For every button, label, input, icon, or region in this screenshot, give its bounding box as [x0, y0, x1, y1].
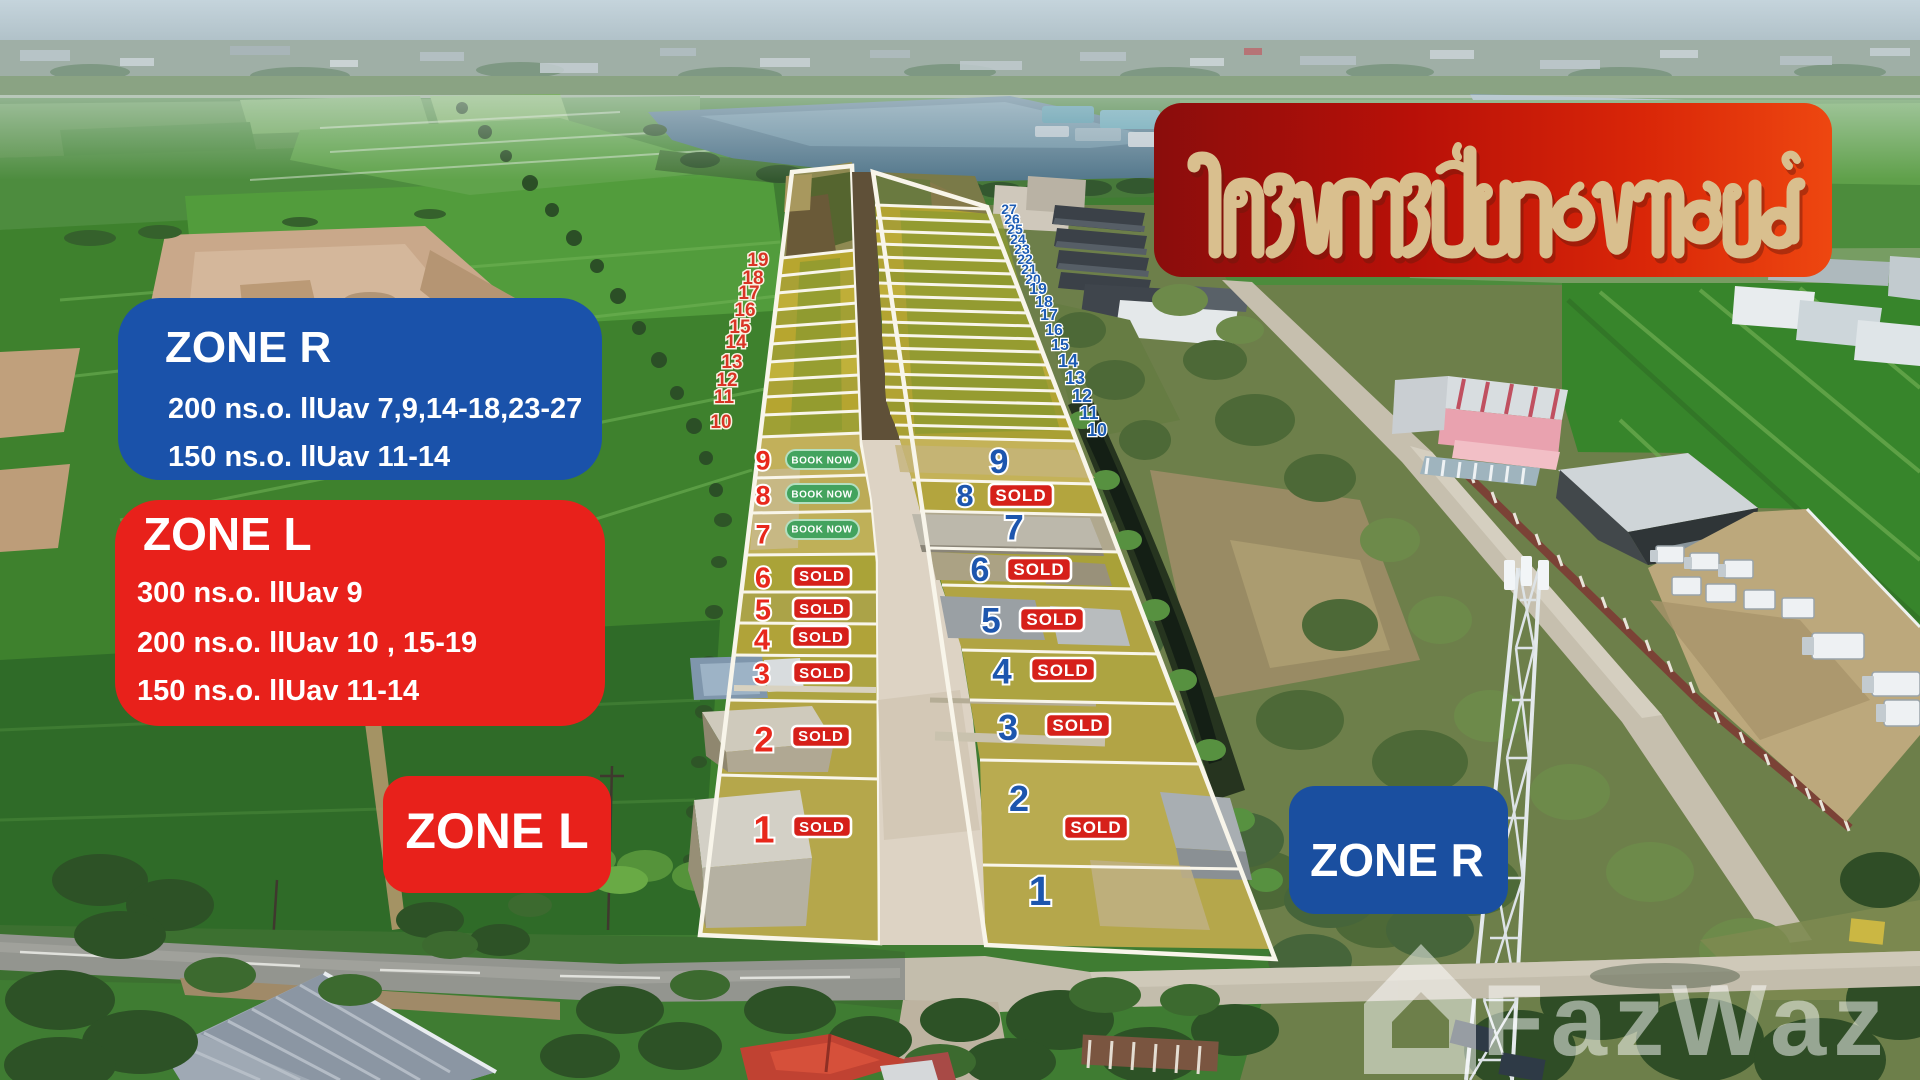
- svg-text:7: 7: [755, 520, 770, 550]
- svg-text:3: 3: [998, 707, 1018, 748]
- svg-text:SOLD: SOLD: [995, 486, 1046, 505]
- svg-text:SOLD: SOLD: [1013, 560, 1064, 579]
- svg-text:3: 3: [754, 658, 770, 690]
- svg-text:4: 4: [754, 624, 770, 656]
- svg-text:SOLD: SOLD: [1037, 661, 1088, 680]
- svg-text:SOLD: SOLD: [799, 601, 845, 618]
- svg-text:14: 14: [725, 332, 747, 353]
- svg-text:1: 1: [1029, 868, 1052, 914]
- svg-text:7: 7: [1004, 509, 1023, 548]
- svg-text:5: 5: [755, 594, 771, 626]
- svg-text:SOLD: SOLD: [798, 728, 844, 745]
- svg-text:SOLD: SOLD: [1026, 610, 1077, 629]
- svg-text:9: 9: [755, 446, 770, 476]
- svg-text:8: 8: [755, 481, 770, 511]
- svg-text:8: 8: [956, 478, 973, 513]
- svg-text:300 ns.o. llUav 9: 300 ns.o. llUav 9: [137, 577, 363, 609]
- svg-text:BOOK NOW: BOOK NOW: [791, 490, 852, 501]
- svg-text:13: 13: [1065, 368, 1085, 388]
- svg-text:SOLD: SOLD: [1052, 716, 1103, 735]
- svg-text:2: 2: [754, 721, 773, 760]
- svg-text:2: 2: [1009, 778, 1029, 819]
- svg-text:ZONE L: ZONE L: [143, 508, 312, 560]
- svg-text:SOLD: SOLD: [799, 819, 845, 836]
- svg-text:200 ns.o. llUav 10 , 15-19: 200 ns.o. llUav 10 , 15-19: [137, 627, 477, 659]
- svg-text:ZONE R: ZONE R: [165, 323, 331, 372]
- svg-text:11: 11: [714, 387, 735, 408]
- svg-text:ZONE R: ZONE R: [1310, 834, 1484, 886]
- svg-text:FazWaz: FazWaz: [1482, 965, 1891, 1077]
- svg-text:ZONE L: ZONE L: [405, 803, 588, 859]
- svg-text:1: 1: [753, 810, 774, 852]
- svg-text:6: 6: [971, 551, 990, 589]
- svg-text:BOOK NOW: BOOK NOW: [791, 525, 852, 536]
- svg-text:SOLD: SOLD: [799, 568, 845, 585]
- svg-text:10: 10: [710, 412, 731, 433]
- svg-text:200 ns.o. llUav 7,9,14-18,23-2: 200 ns.o. llUav 7,9,14-18,23-27: [168, 393, 582, 425]
- svg-text:9: 9: [990, 443, 1009, 481]
- svg-text:SOLD: SOLD: [1070, 818, 1121, 837]
- svg-text:150 ns.o. llUav 11-14: 150 ns.o. llUav 11-14: [137, 675, 419, 707]
- svg-text:5: 5: [981, 602, 1000, 641]
- svg-text:BOOK NOW: BOOK NOW: [791, 456, 852, 467]
- svg-text:150 ns.o. llUav 11-14: 150 ns.o. llUav 11-14: [168, 441, 450, 473]
- svg-text:6: 6: [755, 562, 771, 594]
- svg-text:10: 10: [1087, 420, 1107, 440]
- svg-text:4: 4: [992, 653, 1012, 692]
- svg-text:SOLD: SOLD: [798, 629, 844, 646]
- svg-text:SOLD: SOLD: [799, 665, 845, 682]
